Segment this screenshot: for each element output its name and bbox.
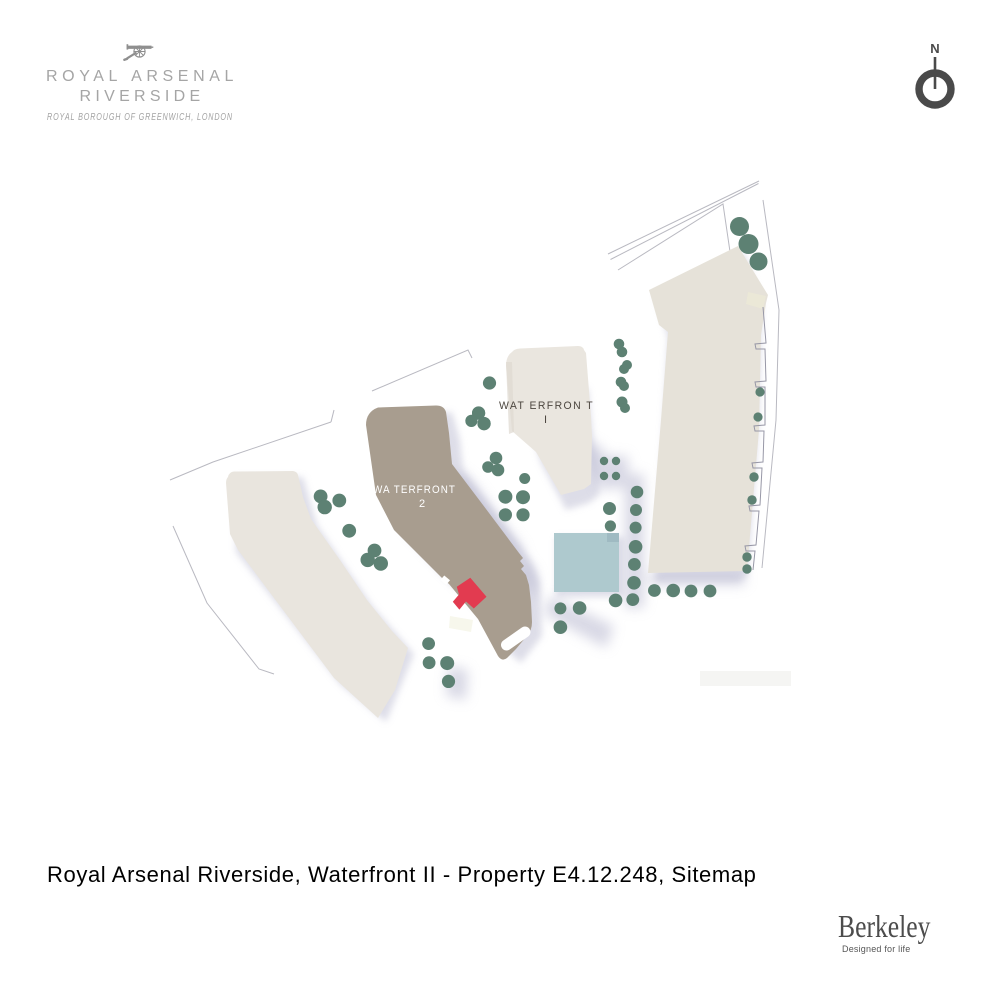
svg-text:WA TERFRONT: WA TERFRONT <box>373 484 456 496</box>
svg-text:I: I <box>544 414 547 426</box>
svg-text:WAT ERFRON T: WAT ERFRON T <box>499 400 594 412</box>
svg-text:2: 2 <box>419 498 425 510</box>
